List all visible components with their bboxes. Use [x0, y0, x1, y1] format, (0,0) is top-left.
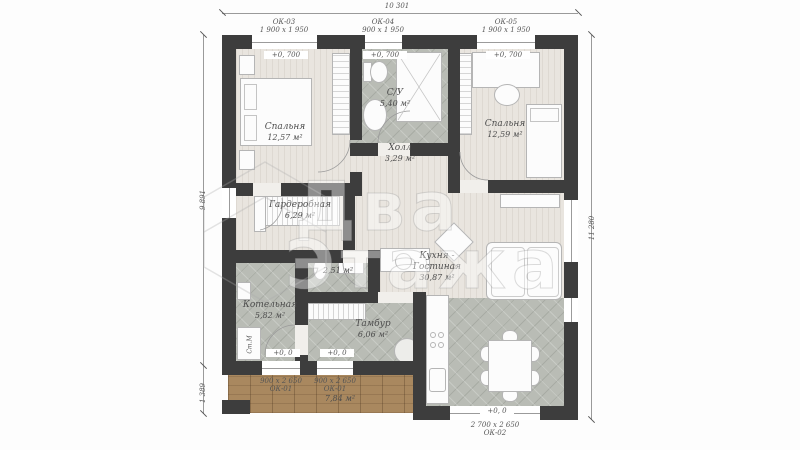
stove-burner	[438, 332, 444, 338]
dim-line-top	[222, 13, 578, 14]
wall-interior	[488, 180, 564, 193]
bed-single	[526, 104, 562, 178]
stove-burner	[430, 332, 436, 338]
opening-size: 2 700 x 2 650	[455, 421, 535, 429]
window-right	[564, 200, 578, 262]
wall-bottom	[222, 361, 262, 375]
room-name: Котельная	[230, 300, 310, 311]
stove-burner	[438, 342, 444, 348]
opening-size: 1 900 x 1 950	[456, 26, 556, 34]
room-name: Холл	[365, 143, 435, 154]
wall-bottom	[353, 361, 420, 375]
tv-console	[500, 194, 560, 208]
room-label-boiler: Котельная 5,82 м²	[230, 300, 310, 320]
level-mark: +0, 0	[480, 407, 514, 415]
opening-id: ОК-01	[295, 385, 375, 393]
wall-right	[564, 262, 578, 298]
room-label-terrace: 7,84 м²	[305, 394, 375, 404]
room-label-bedroom-left: Спальня 12,57 м²	[240, 122, 330, 142]
opening-label-ok01b: 900 x 2 650 ОК-01	[295, 377, 375, 393]
opening-label-ok05: ОК-05 1 900 x 1 950	[456, 18, 556, 34]
pillow	[244, 84, 257, 110]
wall-interior	[448, 180, 460, 193]
room-name: Спальня	[460, 119, 550, 130]
wall-right	[564, 35, 578, 200]
wall-interior	[281, 183, 350, 196]
wall-left	[222, 35, 236, 188]
wall-bottom-dining	[540, 406, 578, 420]
washing-machine: Ст.М	[237, 327, 261, 360]
dim-width-total: 10 301	[337, 2, 457, 10]
dim-line-left	[203, 35, 204, 414]
room-area: 2,51 м²	[313, 266, 363, 276]
window-ok03	[252, 35, 317, 49]
room-area: 5,40 м²	[360, 99, 430, 109]
window-right	[564, 298, 578, 322]
window-ok05	[477, 35, 535, 49]
door-ok01-a	[262, 361, 300, 375]
dining-table	[488, 340, 532, 392]
opening-size: 900 x 1 950	[333, 26, 433, 34]
kitchen-sink	[429, 368, 446, 392]
wall-interior	[236, 183, 253, 196]
level-mark: +0, 700	[363, 51, 407, 59]
window-left	[222, 188, 236, 218]
floor-plan: Ст.М	[0, 0, 800, 450]
opening-size: 1 900 x 1 950	[234, 26, 334, 34]
wardrobe-shelving	[332, 53, 350, 135]
door-opening	[378, 292, 413, 303]
opening-id: ОК-02	[455, 429, 535, 437]
level-mark: +0, 700	[486, 51, 530, 59]
room-area: 30,87 м²	[392, 273, 482, 283]
room-label-vestibule: Тамбур 6,06 м²	[343, 319, 403, 339]
room-name: Кухня -	[392, 251, 482, 262]
stove-burner	[430, 342, 436, 348]
room-area: 12,57 м²	[240, 133, 330, 143]
level-mark: +0, 0	[320, 349, 354, 357]
desk-chair	[494, 84, 520, 106]
wall-left	[222, 218, 236, 375]
door-opening	[343, 250, 368, 263]
sofa	[486, 242, 562, 300]
wall-interior	[300, 292, 378, 303]
toilet-bowl	[370, 61, 388, 83]
dim-height-main: 9 891	[199, 180, 207, 220]
opening-label-ok02: 2 700 x 2 650 ОК-02	[455, 421, 535, 437]
level-mark: +0, 700	[264, 51, 308, 59]
dim-height-terrace: 1 389	[199, 373, 207, 413]
wall-bottom	[300, 361, 317, 375]
wall-top	[317, 35, 365, 49]
dim-height-right: 11 280	[588, 208, 596, 248]
room-name: С/У	[360, 88, 430, 99]
room-name: Гостиная	[392, 262, 482, 273]
terrace-corner	[222, 400, 250, 414]
room-area: 12,59 м²	[460, 130, 550, 140]
opening-id: ОК-05	[456, 18, 556, 26]
wall-interior	[236, 250, 343, 263]
room-name: Спальня	[240, 122, 330, 133]
opening-id: ОК-04	[333, 18, 433, 26]
room-label-kitchen-living: Кухня - Гостиная 30,87 м²	[392, 251, 482, 282]
door-ok01-b	[317, 361, 353, 375]
radiator	[302, 303, 366, 320]
room-area: 7,84 м²	[305, 394, 375, 404]
nightstand	[239, 150, 255, 170]
washing-machine-label: Ст.М	[247, 327, 254, 363]
window-ok04	[365, 35, 402, 49]
room-area: 6,06 м²	[343, 330, 403, 340]
room-name: Тамбур	[343, 319, 403, 330]
room-label-bathroom: С/У 5,40 м²	[360, 88, 430, 108]
room-name: Гардеробная	[255, 200, 345, 211]
shower-cabin	[396, 52, 442, 122]
sofa-cushion	[527, 247, 559, 297]
door-opening	[460, 180, 488, 193]
room-area: 6,29 м²	[255, 211, 345, 221]
wall-interior	[413, 292, 426, 420]
opening-size: 900 x 2 650	[295, 377, 375, 385]
nightstand	[239, 55, 255, 75]
wall-interior	[350, 172, 362, 196]
wall-interior	[448, 49, 460, 180]
opening-id: ОК-03	[234, 18, 334, 26]
room-label-wc: 2,51 м²	[313, 266, 363, 276]
room-label-hall: Холл 3,29 м²	[365, 143, 435, 163]
boiler-unit	[237, 282, 251, 300]
room-area: 3,29 м²	[365, 154, 435, 164]
opening-label-ok04: ОК-04 900 x 1 950	[333, 18, 433, 34]
opening-label-ok03: ОК-03 1 900 x 1 950	[234, 18, 334, 34]
door-opening	[253, 183, 281, 196]
room-label-bedroom-right: Спальня 12,59 м²	[460, 119, 550, 139]
sofa-cushion	[491, 247, 525, 297]
room-area: 5,82 м²	[230, 311, 310, 321]
wall-top	[402, 35, 477, 49]
level-mark: +0, 0	[266, 349, 300, 357]
room-label-wardrobe: Гардеробная 6,29 м²	[255, 200, 345, 220]
